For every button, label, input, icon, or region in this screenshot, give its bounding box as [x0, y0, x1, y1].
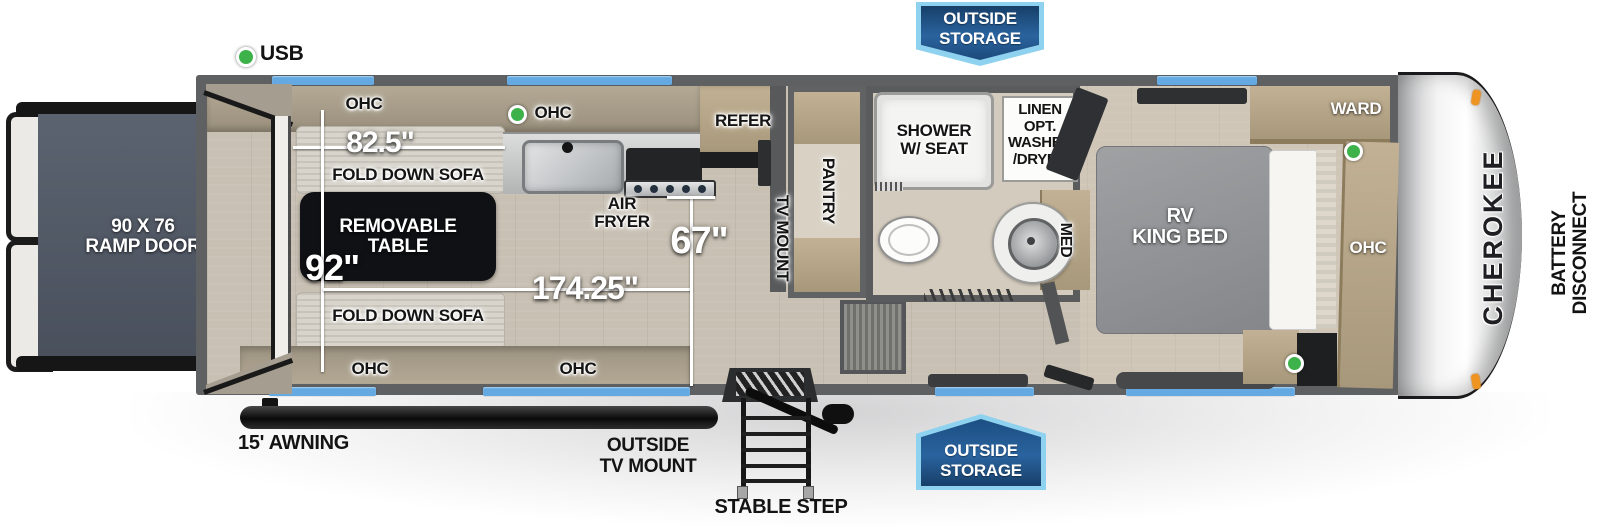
dim-tick-67: [667, 196, 715, 199]
bathroom-door-swing: [924, 289, 1014, 301]
pantry-label: PANTRY: [817, 146, 837, 236]
vanity-drain-icon: [1027, 237, 1035, 245]
sofa-top-dim: 82.5": [316, 126, 444, 160]
floorplan: 90 X 76 RAMP DOOR CHEROKEE BATTERY DISCO…: [0, 0, 1600, 531]
kitchen-sink: [522, 140, 624, 194]
sofa-bottom-label: FOLD DOWN SOFA: [330, 307, 486, 325]
rear-door-edge: [271, 116, 291, 364]
outside-storage-banner-top: OUTSIDE STORAGE: [916, 2, 1044, 66]
stable-step-label: STABLE STEP: [708, 496, 854, 518]
length-dim: 174.25": [512, 270, 658, 307]
width-dim: 92": [294, 247, 370, 289]
usb-indicator-icon: [1285, 354, 1304, 373]
tv-on-mount: [758, 140, 771, 186]
pantry-shelf-top: [794, 92, 860, 144]
refer-label: REFER: [704, 112, 782, 130]
garage-ohc-bottom-right-label: OHC: [548, 360, 608, 378]
usb-indicator-icon: [1344, 142, 1363, 161]
stable-step-rail-right: [806, 398, 811, 486]
sofa-top-label: FOLD DOWN SOFA: [330, 166, 486, 184]
window: [483, 387, 690, 396]
bathroom-tambour-door: [840, 300, 906, 374]
bedroom-ohc-label: OHC: [1342, 239, 1394, 257]
outside-storage-top-label: OUTSIDE STORAGE: [916, 9, 1044, 48]
window: [1157, 76, 1257, 85]
usb-indicator-icon: [508, 105, 527, 124]
stable-step-rung: [741, 448, 811, 452]
garage-ohc-top-label: OHC: [332, 95, 396, 113]
toilet-seat: [888, 224, 930, 256]
overhead-cabinet-bottom: [240, 346, 690, 384]
window: [935, 387, 1034, 396]
pantry-shelf-bottom: [794, 238, 860, 292]
storage-passthrough: [928, 374, 1028, 387]
stable-step-rung: [741, 464, 811, 468]
tv-mount-label: TV MOUNT: [771, 188, 791, 288]
med-label: MED: [1055, 212, 1073, 268]
usb-indicator-icon: [236, 47, 256, 67]
burner-knob-icon: [634, 185, 642, 193]
bedroom-tv-shelf: [1137, 88, 1247, 104]
burner-knob-icon: [650, 185, 658, 193]
faucet-icon: [562, 142, 573, 153]
stable-step-rung: [741, 416, 811, 420]
bedroom-ohc-cabinet: [1337, 141, 1399, 388]
outside-storage-bottom-label: OUTSIDE STORAGE: [916, 441, 1046, 480]
burner-knob-icon: [698, 185, 706, 193]
stable-step-rail-left: [741, 398, 746, 486]
outside-tv-mount-label: OUTSIDE TV MOUNT: [586, 436, 710, 478]
burner-knob-icon: [682, 185, 690, 193]
stable-step-rung: [741, 479, 811, 483]
battery-disconnect-label: BATTERY DISCONNECT: [1550, 168, 1592, 338]
shower-label: SHOWER W/ SEAT: [886, 122, 982, 158]
stable-step-rung: [741, 432, 811, 436]
bed-pillows: [1269, 150, 1319, 330]
awning-roll: [240, 406, 718, 429]
shower-mat: [875, 182, 903, 191]
brand-logo: CHEROKEE: [1478, 127, 1510, 347]
air-fryer-range: [626, 148, 702, 184]
ramp-edge-bottom: [16, 356, 202, 371]
window: [272, 76, 374, 85]
burner-knob-icon: [666, 185, 674, 193]
air-fryer-label: AIR FRYER: [579, 195, 665, 231]
usb-label: USB: [260, 42, 320, 65]
awning-label: 15' AWNING: [238, 432, 368, 454]
height-dim: 67": [663, 220, 735, 263]
window: [507, 76, 672, 85]
vanity-sink-bowl: [1008, 218, 1060, 270]
grab-handle: [822, 404, 854, 424]
ward-label: WARD: [1318, 100, 1394, 118]
garage-ohc-bottom-left-label: OHC: [340, 360, 400, 378]
kitchen-ohc-label: OHC: [527, 104, 579, 122]
bed-label: RV KING BED: [1110, 206, 1250, 248]
bed-runner: [1316, 150, 1336, 328]
